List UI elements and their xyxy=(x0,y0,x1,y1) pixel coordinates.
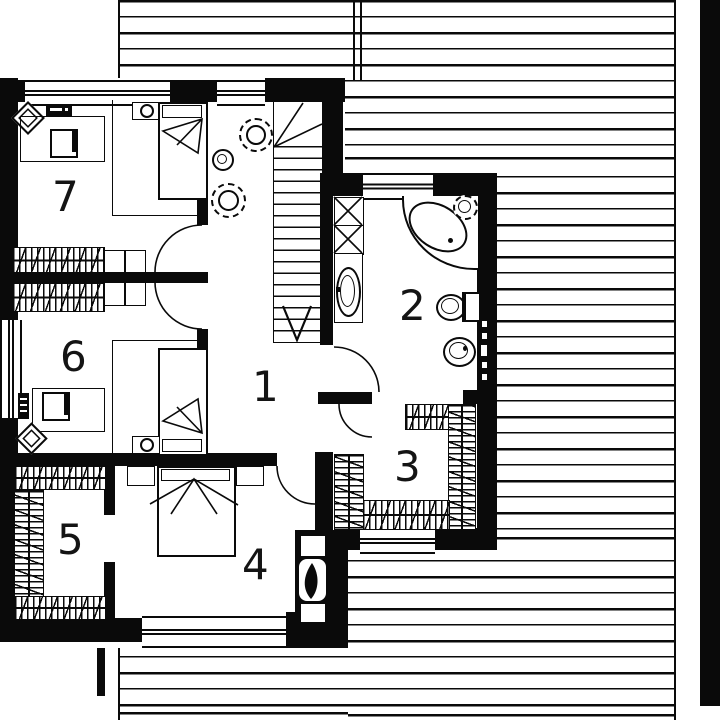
vent-shaft xyxy=(334,225,364,255)
flue-niche-mid xyxy=(299,559,326,601)
wall-rooms-7-6-over xyxy=(12,272,208,283)
plant-inner xyxy=(246,125,266,145)
vent-shaft xyxy=(334,197,364,227)
washbasin-inner xyxy=(340,275,355,307)
radiator-mark xyxy=(481,345,487,356)
room3-bottom-wall-right xyxy=(435,528,497,550)
closet5-rail-left xyxy=(14,490,44,598)
nightstand-room4-right xyxy=(236,466,264,486)
dresser-slit xyxy=(20,398,27,400)
wall-rooms-6-5-4 xyxy=(0,453,277,466)
sideboard-slit xyxy=(65,108,68,111)
pillow-room7 xyxy=(162,105,202,118)
room-label-4: 4 xyxy=(242,540,269,589)
chair-back xyxy=(72,131,76,152)
radiator-mark xyxy=(482,362,487,368)
closet5-rail-bottom xyxy=(14,596,106,620)
room4-right-wall xyxy=(315,452,333,532)
roof-hatch-bottom-left xyxy=(118,648,348,720)
roof-hatch-top xyxy=(118,0,675,80)
exterior-wall-top xyxy=(170,80,217,102)
wardrobe-rail-room6 xyxy=(12,283,105,312)
room-label-1: 1 xyxy=(252,362,279,411)
washbasin-tap xyxy=(336,287,340,292)
roof-hatch-upper-right xyxy=(345,80,675,173)
headboard-room4 xyxy=(161,469,230,481)
dresser-room6 xyxy=(18,393,29,419)
plant-inner xyxy=(218,190,239,211)
closet3-rail-right xyxy=(448,404,476,530)
ridge-line xyxy=(353,0,362,80)
chair-back xyxy=(64,394,68,415)
room-label-5: 5 xyxy=(57,515,84,564)
sideboard-slit xyxy=(50,108,62,111)
closet5-rail-top xyxy=(14,466,106,490)
toilet-cistern xyxy=(462,292,481,322)
hall-room3-wall xyxy=(318,392,372,404)
room-label-6: 6 xyxy=(60,332,87,381)
radiator-mark xyxy=(482,333,487,339)
flue-niche-top xyxy=(301,536,325,556)
roof-hatch-lower-right xyxy=(348,550,675,720)
closet3-rail-top xyxy=(405,404,450,430)
bath-top-wall xyxy=(320,173,363,196)
closet3-rail-bottom xyxy=(362,500,450,530)
closet3-rail-left xyxy=(334,454,364,530)
downpipe-bar xyxy=(97,648,105,696)
roof-hatch-left-border-lower xyxy=(118,648,120,720)
plant-small-inner xyxy=(217,154,227,164)
window-bottom-room4 xyxy=(142,616,286,648)
wardrobe-rail-room7 xyxy=(12,247,105,274)
right-edge-bar xyxy=(700,0,720,706)
dresser-slit xyxy=(20,404,27,406)
pillow-room6 xyxy=(162,439,202,452)
roof-hatch-right-border xyxy=(674,0,676,720)
lamp xyxy=(140,104,154,118)
nightstand-room4-left xyxy=(127,466,155,486)
floor-plan-canvas: 1 2 3 4 5 6 7 xyxy=(0,0,720,720)
room-label-3: 3 xyxy=(394,442,421,491)
window-room3 xyxy=(360,528,435,554)
stair-treads xyxy=(274,146,322,340)
roof-hatch-right xyxy=(497,173,675,550)
radiator-mark xyxy=(482,321,487,327)
lamp xyxy=(140,438,154,452)
exterior-wall-right xyxy=(477,173,497,550)
dresser-slit xyxy=(20,410,27,412)
window-top-hall xyxy=(217,80,265,106)
flue-niche-bottom xyxy=(301,604,325,622)
exterior-wall-bottom-left xyxy=(0,618,142,642)
room3-top-wall-right xyxy=(463,390,497,404)
radiator-mark xyxy=(482,374,487,380)
room-label-7: 7 xyxy=(52,172,79,221)
room-label-2: 2 xyxy=(399,281,426,330)
bathtub-drain xyxy=(448,238,453,243)
toilet-bowl-inner xyxy=(441,298,459,314)
roof-hatch-left-border xyxy=(118,0,120,80)
basket-inner xyxy=(458,200,471,213)
bidet-tap xyxy=(463,346,467,351)
